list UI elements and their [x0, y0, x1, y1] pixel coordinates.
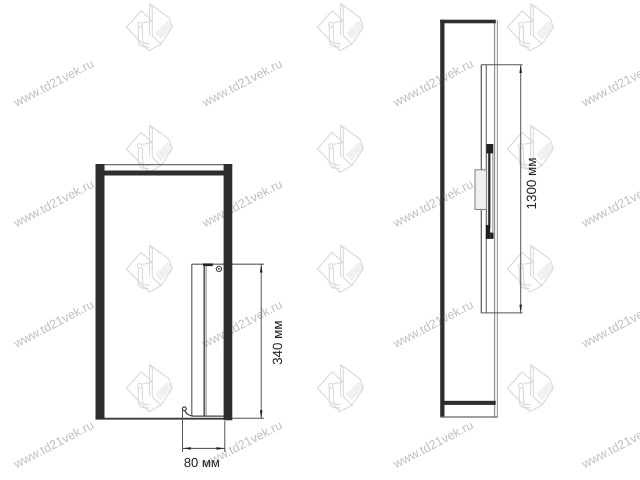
svg-text:340 мм: 340 мм — [270, 320, 285, 364]
svg-text:1300 мм: 1300 мм — [524, 158, 539, 210]
svg-text:80 мм: 80 мм — [184, 455, 220, 470]
